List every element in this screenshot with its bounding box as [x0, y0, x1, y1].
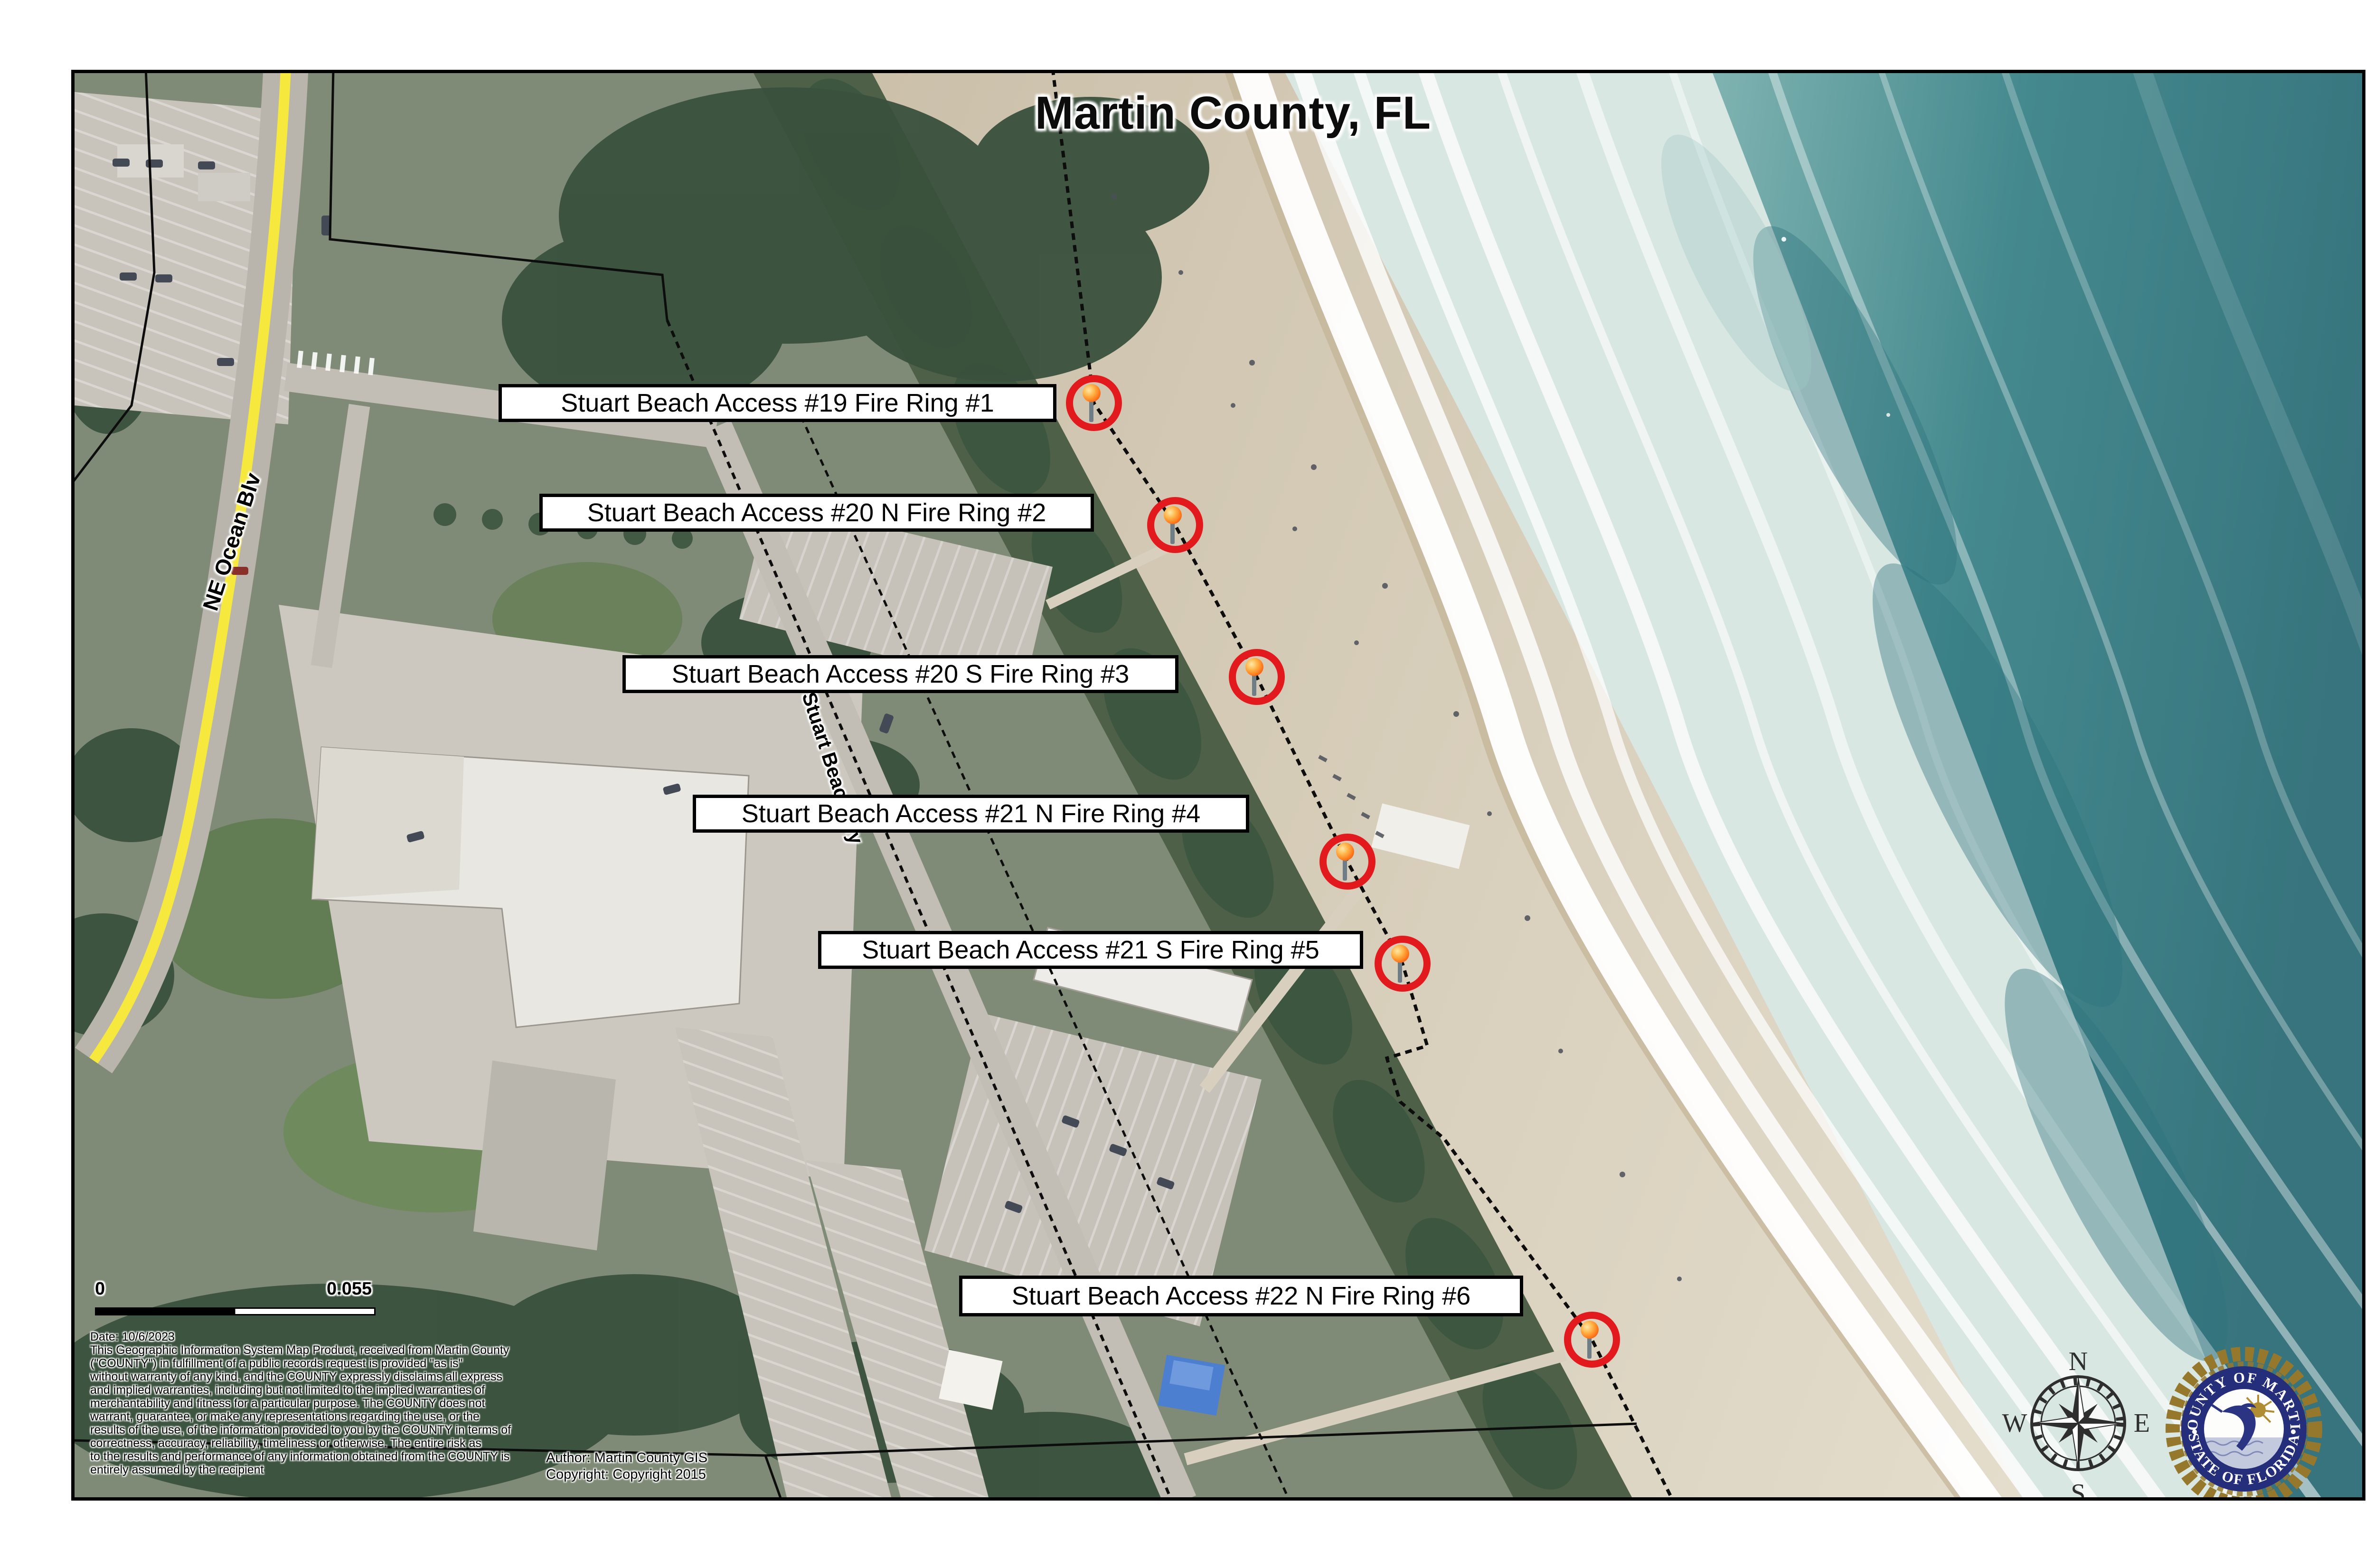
fire-ring-label-6: Stuart Beach Access #22 N Fire Ring #6 — [959, 1276, 1523, 1316]
compass-e-label: E — [2134, 1408, 2150, 1438]
disclaimer-line: and implied warranties, including but no… — [90, 1383, 511, 1397]
fire-ring-label-4: Stuart Beach Access #21 N Fire Ring #4 — [693, 795, 1249, 833]
scale-end-value: 0.055 — [327, 1279, 372, 1299]
disclaimer-line: without warranty of any kind, and the CO… — [90, 1370, 511, 1383]
disclaimer-line: warrant, guarantee, or make any represen… — [90, 1410, 511, 1423]
disclaimer-text: Date: 10/6/2023 This Geographic Informat… — [90, 1330, 511, 1476]
compass-s-label: S — [2071, 1479, 2085, 1497]
compass-w-label: W — [2002, 1408, 2027, 1438]
highlight-ring-icon — [1147, 497, 1203, 553]
highlight-ring-icon — [1229, 649, 1285, 705]
fire-ring-label-5: Stuart Beach Access #21 S Fire Ring #5 — [818, 931, 1363, 969]
map-document-page: N E S W — [0, 0, 2374, 1568]
disclaimer-line: This Geographic Information System Map P… — [90, 1343, 511, 1357]
compass-n-label: N — [2069, 1347, 2088, 1376]
highlight-ring-icon — [1066, 375, 1122, 431]
disclaimer-line: ("COUNTY") in fulfillment of a public re… — [90, 1357, 511, 1370]
map-title: Martin County, FL — [901, 86, 1565, 140]
map-area: N E S W — [71, 70, 2365, 1501]
scale-bar-graphic — [95, 1307, 376, 1315]
fire-ring-label-2: Stuart Beach Access #20 N Fire Ring #2 — [539, 494, 1094, 532]
disclaimer-line: to the results and performance of any in… — [90, 1450, 511, 1463]
highlight-ring-icon — [1319, 834, 1375, 890]
copyright-line: Copyright: Copyright 2015 — [546, 1466, 707, 1483]
author-line: Author: Martin County GIS — [546, 1450, 707, 1466]
disclaimer-line: results of the use, of the information p… — [90, 1423, 511, 1437]
highlight-ring-icon — [1375, 936, 1431, 992]
disclaimer-line: merchantability and fitness for a partic… — [90, 1397, 511, 1410]
disclaimer-line: entirely assumed by the recipient — [90, 1463, 511, 1476]
disclaimer-line: Date: 10/6/2023 — [90, 1330, 511, 1343]
credits: Author: Martin County GIS Copyright: Cop… — [546, 1450, 707, 1483]
highlight-ring-icon — [1564, 1312, 1620, 1368]
disclaimer-line: correctness, accuracy, reliability, time… — [90, 1437, 511, 1450]
scale-start-value: 0 — [95, 1279, 105, 1299]
fire-ring-label-3: Stuart Beach Access #20 S Fire Ring #3 — [622, 655, 1178, 693]
fire-ring-label-1: Stuart Beach Access #19 Fire Ring #1 — [499, 384, 1056, 422]
